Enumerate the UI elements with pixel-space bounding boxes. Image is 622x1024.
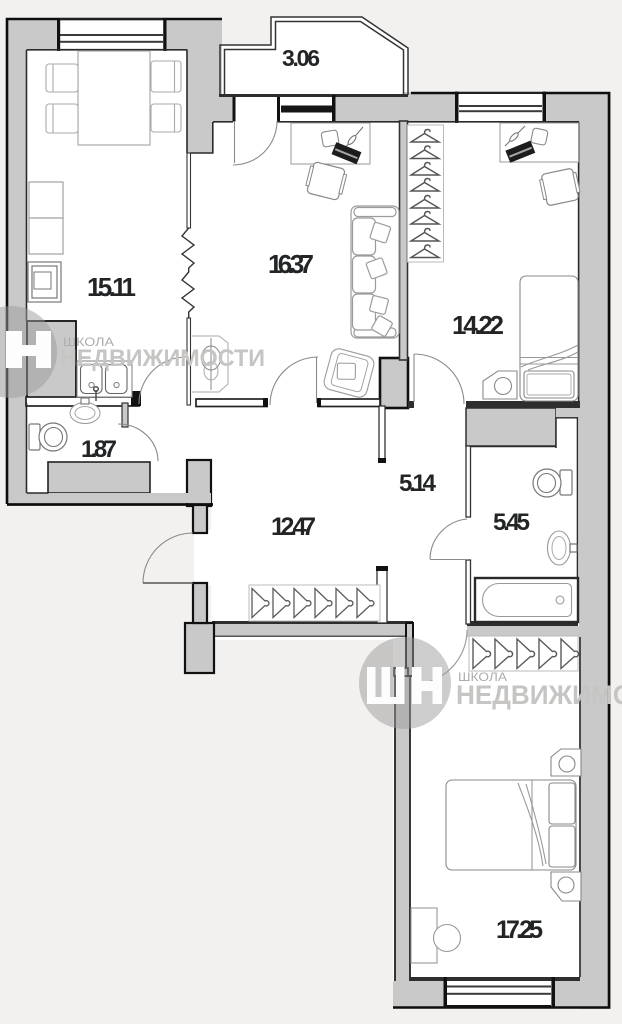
svg-text:1.87: 1.87	[81, 436, 117, 463]
svg-text:5.14: 5.14	[399, 470, 437, 497]
svg-text:3.06: 3.06	[282, 45, 320, 71]
svg-text:14.22: 14.22	[452, 310, 504, 340]
svg-text:НЕДВИЖИМОСТИ: НЕДВИЖИМОСТИ	[60, 345, 265, 372]
svg-text:5.45: 5.45	[493, 509, 530, 536]
svg-text:16.37: 16.37	[268, 249, 314, 279]
svg-text:12.47: 12.47	[271, 513, 316, 541]
svg-text:17.25: 17.25	[496, 916, 543, 944]
svg-text:НЕДВИЖИМОСТИ: НЕДВИЖИМОСТИ	[456, 680, 622, 710]
svg-text:15.11: 15.11	[87, 272, 136, 302]
